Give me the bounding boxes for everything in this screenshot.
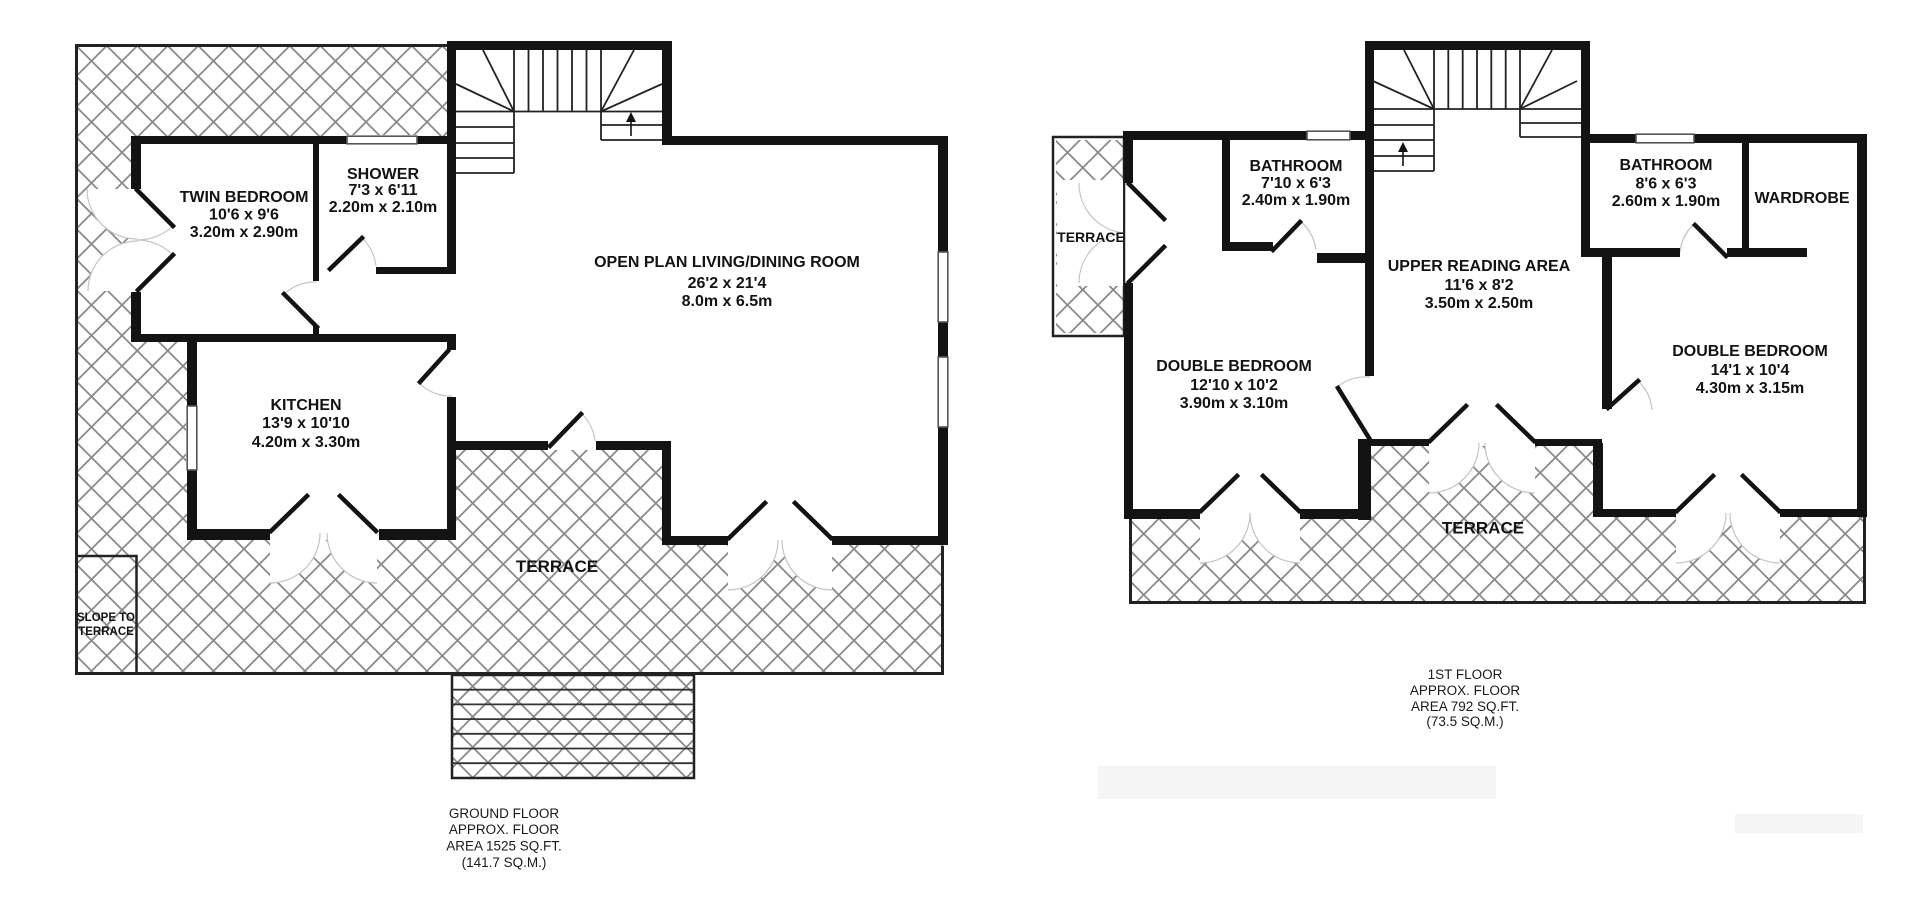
- svg-text:DOUBLE BEDROOM: DOUBLE BEDROOM: [1156, 358, 1312, 375]
- svg-text:KITCHEN: KITCHEN: [270, 397, 341, 414]
- svg-text:8.0m x 6.5m: 8.0m x 6.5m: [682, 293, 773, 310]
- svg-text:13'9 x 10'10: 13'9 x 10'10: [262, 415, 350, 432]
- svg-text:WARDROBE: WARDROBE: [1754, 190, 1849, 207]
- svg-text:BATHROOM: BATHROOM: [1249, 158, 1342, 175]
- svg-text:BATHROOM: BATHROOM: [1619, 157, 1712, 174]
- svg-text:DOUBLE BEDROOM: DOUBLE BEDROOM: [1672, 343, 1828, 360]
- svg-text:8'6 x 6'3: 8'6 x 6'3: [1636, 176, 1697, 193]
- svg-text:7'10 x 6'3: 7'10 x 6'3: [1261, 175, 1331, 192]
- svg-text:(73.5 SQ.M.): (73.5 SQ.M.): [1426, 714, 1503, 729]
- svg-text:1ST FLOOR: 1ST FLOOR: [1428, 667, 1503, 682]
- svg-text:4.20m x 3.30m: 4.20m x 3.30m: [252, 434, 361, 451]
- svg-text:7'3 x 6'11: 7'3 x 6'11: [348, 182, 417, 199]
- svg-text:TERRACE: TERRACE: [1057, 229, 1125, 245]
- svg-text:2.60m x 1.90m: 2.60m x 1.90m: [1612, 193, 1721, 210]
- svg-text:2.20m x 2.10m: 2.20m x 2.10m: [329, 199, 438, 216]
- svg-text:GROUND FLOOR: GROUND FLOOR: [449, 806, 560, 821]
- svg-text:14'1 x 10'4: 14'1 x 10'4: [1711, 362, 1790, 379]
- svg-text:3.20m x 2.90m: 3.20m x 2.90m: [190, 224, 299, 241]
- svg-text:AREA 792 SQ.FT.: AREA 792 SQ.FT.: [1411, 699, 1519, 714]
- svg-text:12'10 x 10'2: 12'10 x 10'2: [1190, 377, 1278, 394]
- svg-text:11'6 x 8'2: 11'6 x 8'2: [1444, 277, 1513, 294]
- svg-text:3.50m x 2.50m: 3.50m x 2.50m: [1425, 295, 1534, 312]
- svg-text:4.30m x 3.15m: 4.30m x 3.15m: [1696, 380, 1805, 397]
- svg-text:TWIN BEDROOM: TWIN BEDROOM: [180, 189, 309, 206]
- svg-text:APPROX. FLOOR: APPROX. FLOOR: [1410, 683, 1521, 698]
- svg-text:APPROX. FLOOR: APPROX. FLOOR: [449, 822, 560, 837]
- svg-text:AREA 1525 SQ.FT.: AREA 1525 SQ.FT.: [446, 839, 562, 854]
- svg-text:SLOPE TO: SLOPE TO: [77, 612, 135, 624]
- svg-text:TERRACE: TERRACE: [516, 557, 598, 576]
- svg-text:(141.7 SQ.M.): (141.7 SQ.M.): [462, 855, 547, 870]
- svg-text:OPEN PLAN LIVING/DINING ROOM: OPEN PLAN LIVING/DINING ROOM: [594, 254, 860, 271]
- svg-text:SHOWER: SHOWER: [347, 166, 419, 183]
- svg-text:TERRACE: TERRACE: [1442, 519, 1524, 538]
- svg-text:10'6 x 9'6: 10'6 x 9'6: [209, 207, 279, 224]
- svg-text:26'2 x 21'4: 26'2 x 21'4: [688, 275, 767, 292]
- svg-text:2.40m x 1.90m: 2.40m x 1.90m: [1242, 192, 1351, 209]
- svg-text:UPPER READING AREA: UPPER READING AREA: [1388, 258, 1571, 275]
- svg-text:TERRACE: TERRACE: [78, 626, 134, 638]
- svg-text:3.90m x 3.10m: 3.90m x 3.10m: [1180, 395, 1289, 412]
